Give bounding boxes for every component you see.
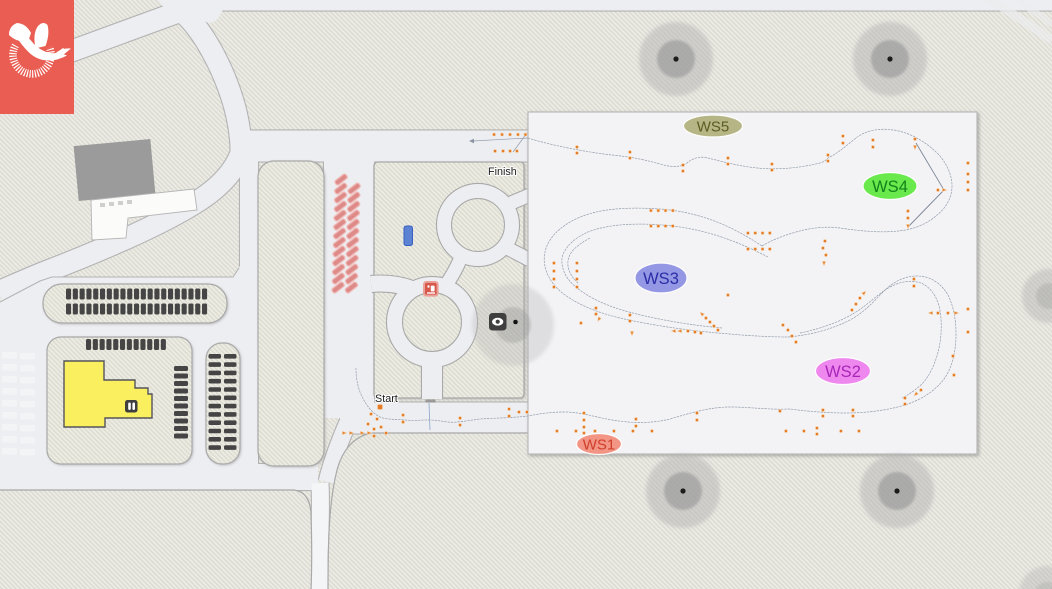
svg-text:WS2: WS2: [825, 363, 861, 381]
svg-text:Start: Start: [375, 393, 398, 405]
svg-text:WS4: WS4: [872, 178, 908, 196]
svg-text:WS5: WS5: [697, 118, 730, 135]
svg-text:WS1: WS1: [583, 436, 616, 453]
svg-text:Finish: Finish: [488, 166, 517, 178]
svg-text:WS3: WS3: [643, 270, 679, 288]
